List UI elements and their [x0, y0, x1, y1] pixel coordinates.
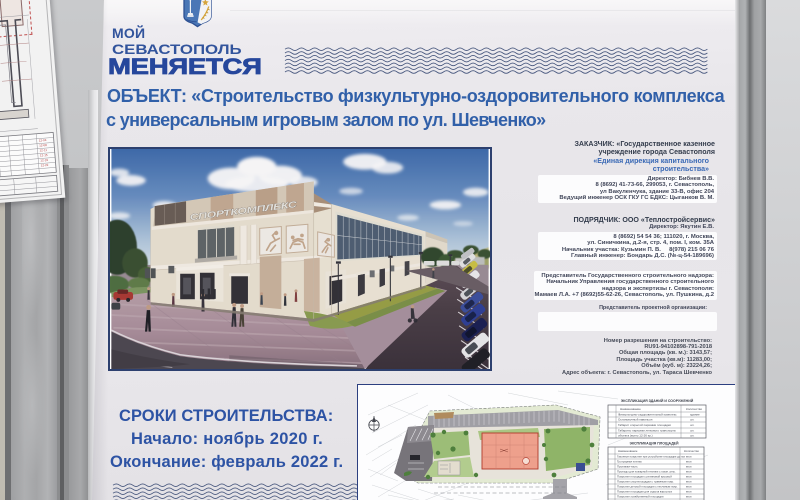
svg-text:12-11: 12-11 — [39, 148, 47, 153]
svg-text:объекта (всего 12-26 кр.): объекта (всего 12-26 кр.) — [618, 434, 653, 438]
svg-text:ЭКСПЛИКАЦИЯ ПЛОЩАДЕЙ: ЭКСПЛИКАЦИЯ ПЛОЩАДЕЙ — [629, 442, 679, 446]
svg-text:Наименование: Наименование — [620, 407, 641, 411]
svg-text:кв.м: кв.м — [686, 460, 691, 464]
svg-text:Количество: Количество — [684, 449, 699, 453]
svg-text:кв.м: кв.м — [686, 480, 691, 484]
svg-text:Проезжая часть: Проезжая часть — [617, 465, 638, 469]
svg-text:Физкультурно-оздоровительный к: Физкультурно-оздоровительный комплекс — [618, 413, 677, 417]
svg-text:12-22: 12-22 — [41, 163, 49, 168]
svg-text:кв.м: кв.м — [686, 465, 691, 469]
svg-text:Тротуарная плитка: Тротуарная плитка — [617, 460, 642, 464]
svg-text:Покрытие хозяйственной площадк: Покрытие хозяйственной площадки — [617, 495, 664, 499]
svg-text:кв.м: кв.м — [686, 495, 691, 499]
svg-text:кв.м: кв.м — [686, 475, 691, 479]
svg-text:12-08: 12-08 — [39, 143, 47, 148]
svg-text:шт.: шт. — [690, 423, 694, 427]
svg-text:кв.м: кв.м — [686, 455, 691, 459]
svg-text:12-15: 12-15 — [40, 153, 48, 158]
svg-text:Покрытие спортплощадки с травя: Покрытие спортплощадки с травяным покр. — [617, 480, 674, 484]
svg-text:здание: здание — [690, 413, 700, 417]
svg-text:12-19: 12-19 — [40, 158, 48, 163]
svg-text:Покрытие площадки с резиновой: Покрытие площадки с резиновой крошкой — [617, 475, 672, 479]
svg-text:Количество: Количество — [686, 407, 702, 411]
svg-text:кв.м: кв.м — [686, 485, 691, 489]
svg-text:кв.м: кв.м — [686, 470, 691, 474]
svg-text:шт.: шт. — [690, 434, 694, 438]
svg-text:12-04: 12-04 — [39, 138, 47, 143]
svg-text:Газонное покрытие при устройст: Газонное покрытие при устройстве площадк… — [617, 455, 686, 459]
svg-text:шт.: шт. — [690, 418, 694, 422]
svg-text:Покрытие детской площадки с пе: Покрытие детской площадки с песчаным пок… — [617, 485, 678, 489]
svg-text:шт.: шт. — [690, 429, 694, 433]
svg-text:ЭКСПЛИКАЦИЯ ЗДАНИЙ И СООРУЖЕНИ: ЭКСПЛИКАЦИЯ ЗДАНИЙ И СООРУЖЕНИЙ — [621, 399, 694, 403]
svg-text:Проезды для пожарной техники с: Проезды для пожарной техники с газон. ре… — [617, 470, 676, 474]
svg-text:Габариты парковки легкового тр: Габариты парковки легкового транспорта — [618, 429, 676, 433]
svg-text:Наименование: Наименование — [618, 449, 638, 453]
svg-text:Габарит открытой парковки площ: Габарит открытой парковки площадки — [618, 423, 671, 427]
svg-text:кв.м: кв.м — [686, 490, 691, 494]
svg-text:Остановочный павильон: Остановочный павильон — [618, 418, 653, 422]
svg-text:Покрытие площадки для отдыха в: Покрытие площадки для отдыха взрослых — [617, 490, 673, 494]
